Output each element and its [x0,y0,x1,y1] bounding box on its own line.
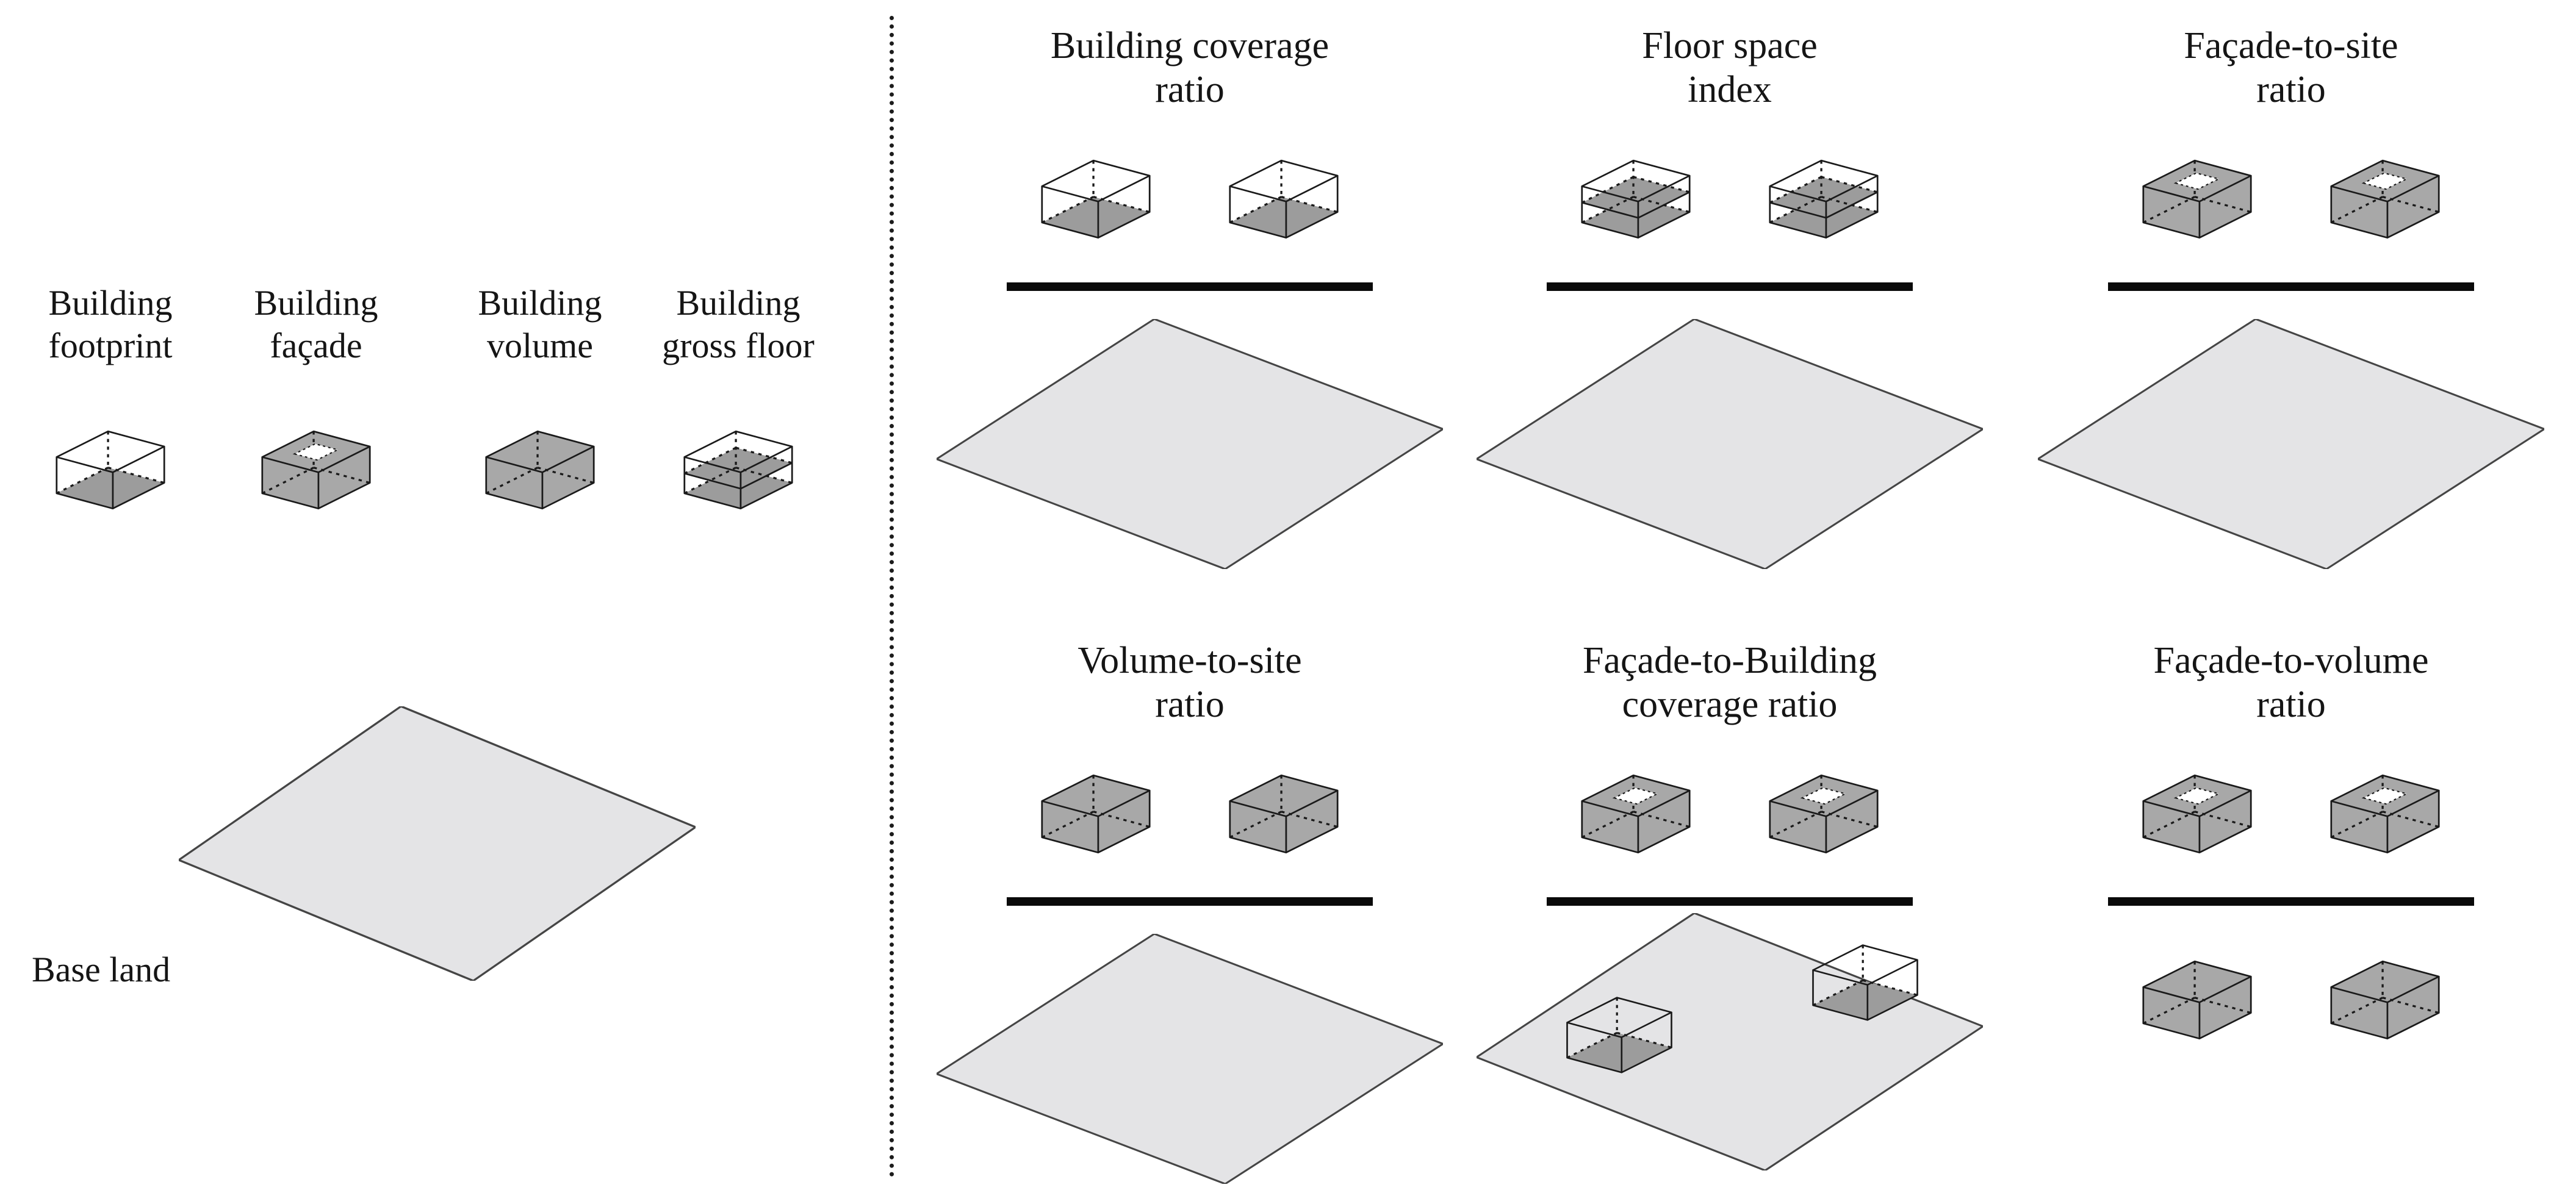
label-line2: volume [439,324,641,367]
label-line2: gross floor [638,324,839,367]
panel-facade-to-volume-ratio: Façade-to-volume ratio [2032,639,2550,1049]
panel-facade-to-site-ratio: Façade-to-site ratio [2032,24,2550,569]
panel-title-line2: ratio [930,683,1449,727]
panel-title: Floor space index [1470,24,1989,112]
site-parallelogram [937,319,1443,569]
volume-box-icon [1224,764,1344,863]
numerator-boxes [930,764,1449,863]
label-line2: footprint [10,324,211,367]
panel-title-line2: ratio [2032,68,2550,112]
concept-label-building-gross-floor: Building gross floor [638,282,839,367]
panel-title-line1: Building coverage [930,24,1449,68]
numerator-boxes [1470,764,1989,863]
facade-box-icon [2137,149,2257,248]
panel-building-coverage-ratio: Building coverage ratio [930,24,1449,569]
panel-title-line1: Façade-to-volume [2032,639,2550,683]
figure-building-metrics: { "left": { "concepts": [ { "line1": "Bu… [0,0,2576,1190]
facade-box-icon [2325,149,2445,248]
gross-floor-box-icon [1576,149,1696,248]
panel-title: Façade-to-site ratio [2032,24,2550,112]
site-parallelogram [2038,319,2544,569]
site-parallelogram [937,934,1443,1184]
fraction-bar [1547,282,1913,291]
panel-floor-space-index: Floor space index [1470,24,1989,569]
label-line1: Building [638,282,839,324]
building-volume-box-icon [480,420,600,519]
site-parallelogram [1477,319,1983,569]
panel-title-line1: Floor space [1470,24,1989,68]
panel-title: Building coverage ratio [930,24,1449,112]
facade-box-icon [2137,764,2257,863]
numerator-boxes [930,149,1449,248]
panel-volume-to-site-ratio: Volume-to-site ratio [930,639,1449,1184]
fraction-bar [2108,897,2474,906]
panel-title-line1: Volume-to-site [930,639,1449,683]
site-with-footprint-boxes [1472,908,1988,1174]
panel-title-line2: index [1470,68,1989,112]
concept-label-building-footprint: Building footprint [10,282,211,367]
label-line2: façade [215,324,417,367]
base-land-shape [179,706,696,981]
base-land-label: Base land [32,950,170,989]
numerator-boxes [2032,149,2550,248]
building-gross-floor-box-icon [678,420,798,519]
panel-title: Façade-to-volume ratio [2032,639,2550,727]
label-line1: Building [215,282,417,324]
panel-title-line2: ratio [2032,683,2550,727]
panel-title-line2: ratio [930,68,1449,112]
label-line1: Building [439,282,641,324]
panel-title-line1: Façade-to-Building [1470,639,1989,683]
facade-box-icon [2325,764,2445,863]
divider-dotted-line [890,16,894,1177]
concept-label-building-facade: Building façade [215,282,417,367]
footprint-box-icon [1036,149,1156,248]
concept-label-building-volume: Building volume [439,282,641,367]
fraction-bar [1547,897,1913,906]
numerator-boxes [1470,149,1989,248]
gross-floor-box-icon [1764,149,1883,248]
facade-box-icon [1764,764,1883,863]
fraction-bar [2108,282,2474,291]
volume-box-icon [2325,950,2445,1049]
volume-box-icon [1036,764,1156,863]
panel-title-line2: coverage ratio [1470,683,1989,727]
numerator-boxes [2032,764,2550,863]
facade-box-icon [1576,764,1696,863]
footprint-box-icon [1224,149,1344,248]
building-facade-box-icon [256,420,376,519]
panel-facade-to-building-coverage-ratio: Façade-to-Building coverage ratio [1470,639,1989,1174]
fraction-bar [1007,282,1373,291]
panel-title: Volume-to-site ratio [930,639,1449,727]
label-line1: Building [10,282,211,324]
fraction-bar [1007,897,1373,906]
panel-title: Façade-to-Building coverage ratio [1470,639,1989,727]
building-footprint-box-icon [51,420,170,519]
denominator-boxes [2032,950,2550,1049]
volume-box-icon [2137,950,2257,1049]
panel-title-line1: Façade-to-site [2032,24,2550,68]
